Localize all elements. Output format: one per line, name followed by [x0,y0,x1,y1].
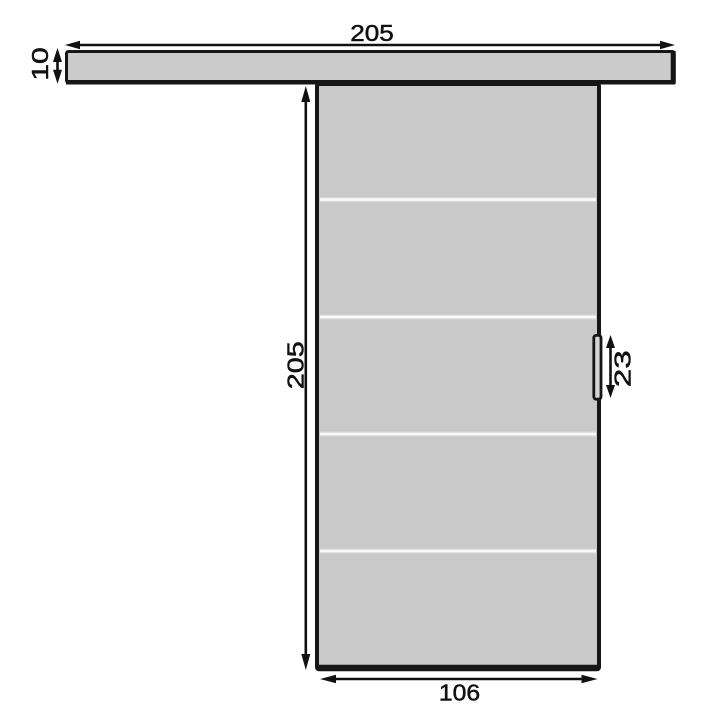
svg-text:106: 106 [439,679,480,705]
svg-text:23: 23 [610,350,636,387]
svg-text:205: 205 [283,341,309,389]
svg-text:10: 10 [27,47,53,81]
svg-text:205: 205 [350,20,394,46]
